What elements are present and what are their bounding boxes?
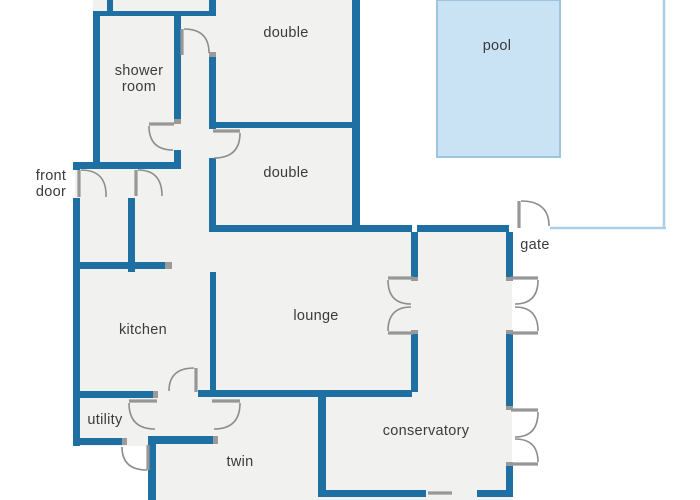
label-gate: gate [520, 237, 549, 253]
wall-doubles-east [352, 0, 360, 232]
wall-east-upper [506, 232, 513, 277]
jamb-south-kitchen [153, 391, 158, 398]
wall-corridor-east-stub [209, 0, 216, 11]
wall-corridor-east-lower [209, 158, 216, 232]
label-shower-room: showerroom [115, 63, 164, 95]
jamb-utility-south [122, 438, 127, 445]
wall-vestibule [128, 198, 135, 272]
wall-hall-south [148, 436, 213, 444]
floor-plan-page: showerroomdoubledoublepoolfrontdoorgatek… [0, 0, 700, 500]
label-conservatory: conservatory [383, 423, 470, 439]
wall-shower-west [93, 11, 100, 162]
utility-back-door-swing-arc [122, 447, 147, 470]
wall-top-north [93, 11, 216, 16]
wall-doubles-divider [212, 122, 360, 128]
label-lounge: lounge [293, 308, 338, 324]
wall-west-main [73, 198, 80, 446]
label-utility: utility [87, 412, 123, 428]
wall-yard-south [417, 225, 509, 232]
gate-door-swing-arc [521, 201, 549, 226]
wall-south-kitchen [75, 391, 153, 398]
wall-entry-north [73, 162, 181, 169]
jamb-kitchen-north [165, 262, 172, 269]
label-double-bottom: double [263, 165, 308, 181]
wall-south-main [198, 390, 412, 397]
wall-shower-east-upper [174, 16, 181, 119]
conservatory-french-door-bottom-arc [515, 439, 538, 462]
pool-area [437, 0, 560, 157]
wall-kitchen-north [75, 262, 165, 269]
jamb-hall-south [213, 436, 218, 444]
wall-utility-south [75, 438, 122, 445]
wall-kitchen-east [210, 272, 216, 392]
label-twin: twin [227, 454, 254, 470]
wall-corridor-east-mid [209, 57, 216, 129]
label-kitchen: kitchen [119, 322, 167, 338]
wall-twin-divider [318, 390, 326, 493]
wall-lounge-east-upper [411, 232, 418, 277]
wall-shower-east-lower [174, 150, 181, 163]
wall-lounge-east-lower [411, 334, 418, 392]
jamb-shower-door [174, 119, 181, 124]
wall-bottom-west [318, 490, 426, 497]
wall-east-lower [506, 466, 513, 497]
jamb-corridor-door [209, 52, 216, 57]
wall-west-upper [73, 162, 80, 170]
floor-plan-drawing: showerroomdoubledoublepoolfrontdoorgatek… [0, 0, 700, 500]
label-front-door: frontdoor [36, 168, 67, 200]
label-pool: pool [483, 38, 512, 54]
garden-french-door-top-arc [515, 280, 538, 304]
conservatory-french-door-top-arc [515, 412, 538, 437]
wall-east-mid [506, 334, 513, 410]
label-double-top: double [263, 25, 308, 41]
floor-south-block [148, 232, 512, 500]
garden-french-door-bottom-arc [515, 307, 538, 331]
wall-lounge-north [212, 225, 412, 232]
wall-top-stub [107, 0, 113, 11]
